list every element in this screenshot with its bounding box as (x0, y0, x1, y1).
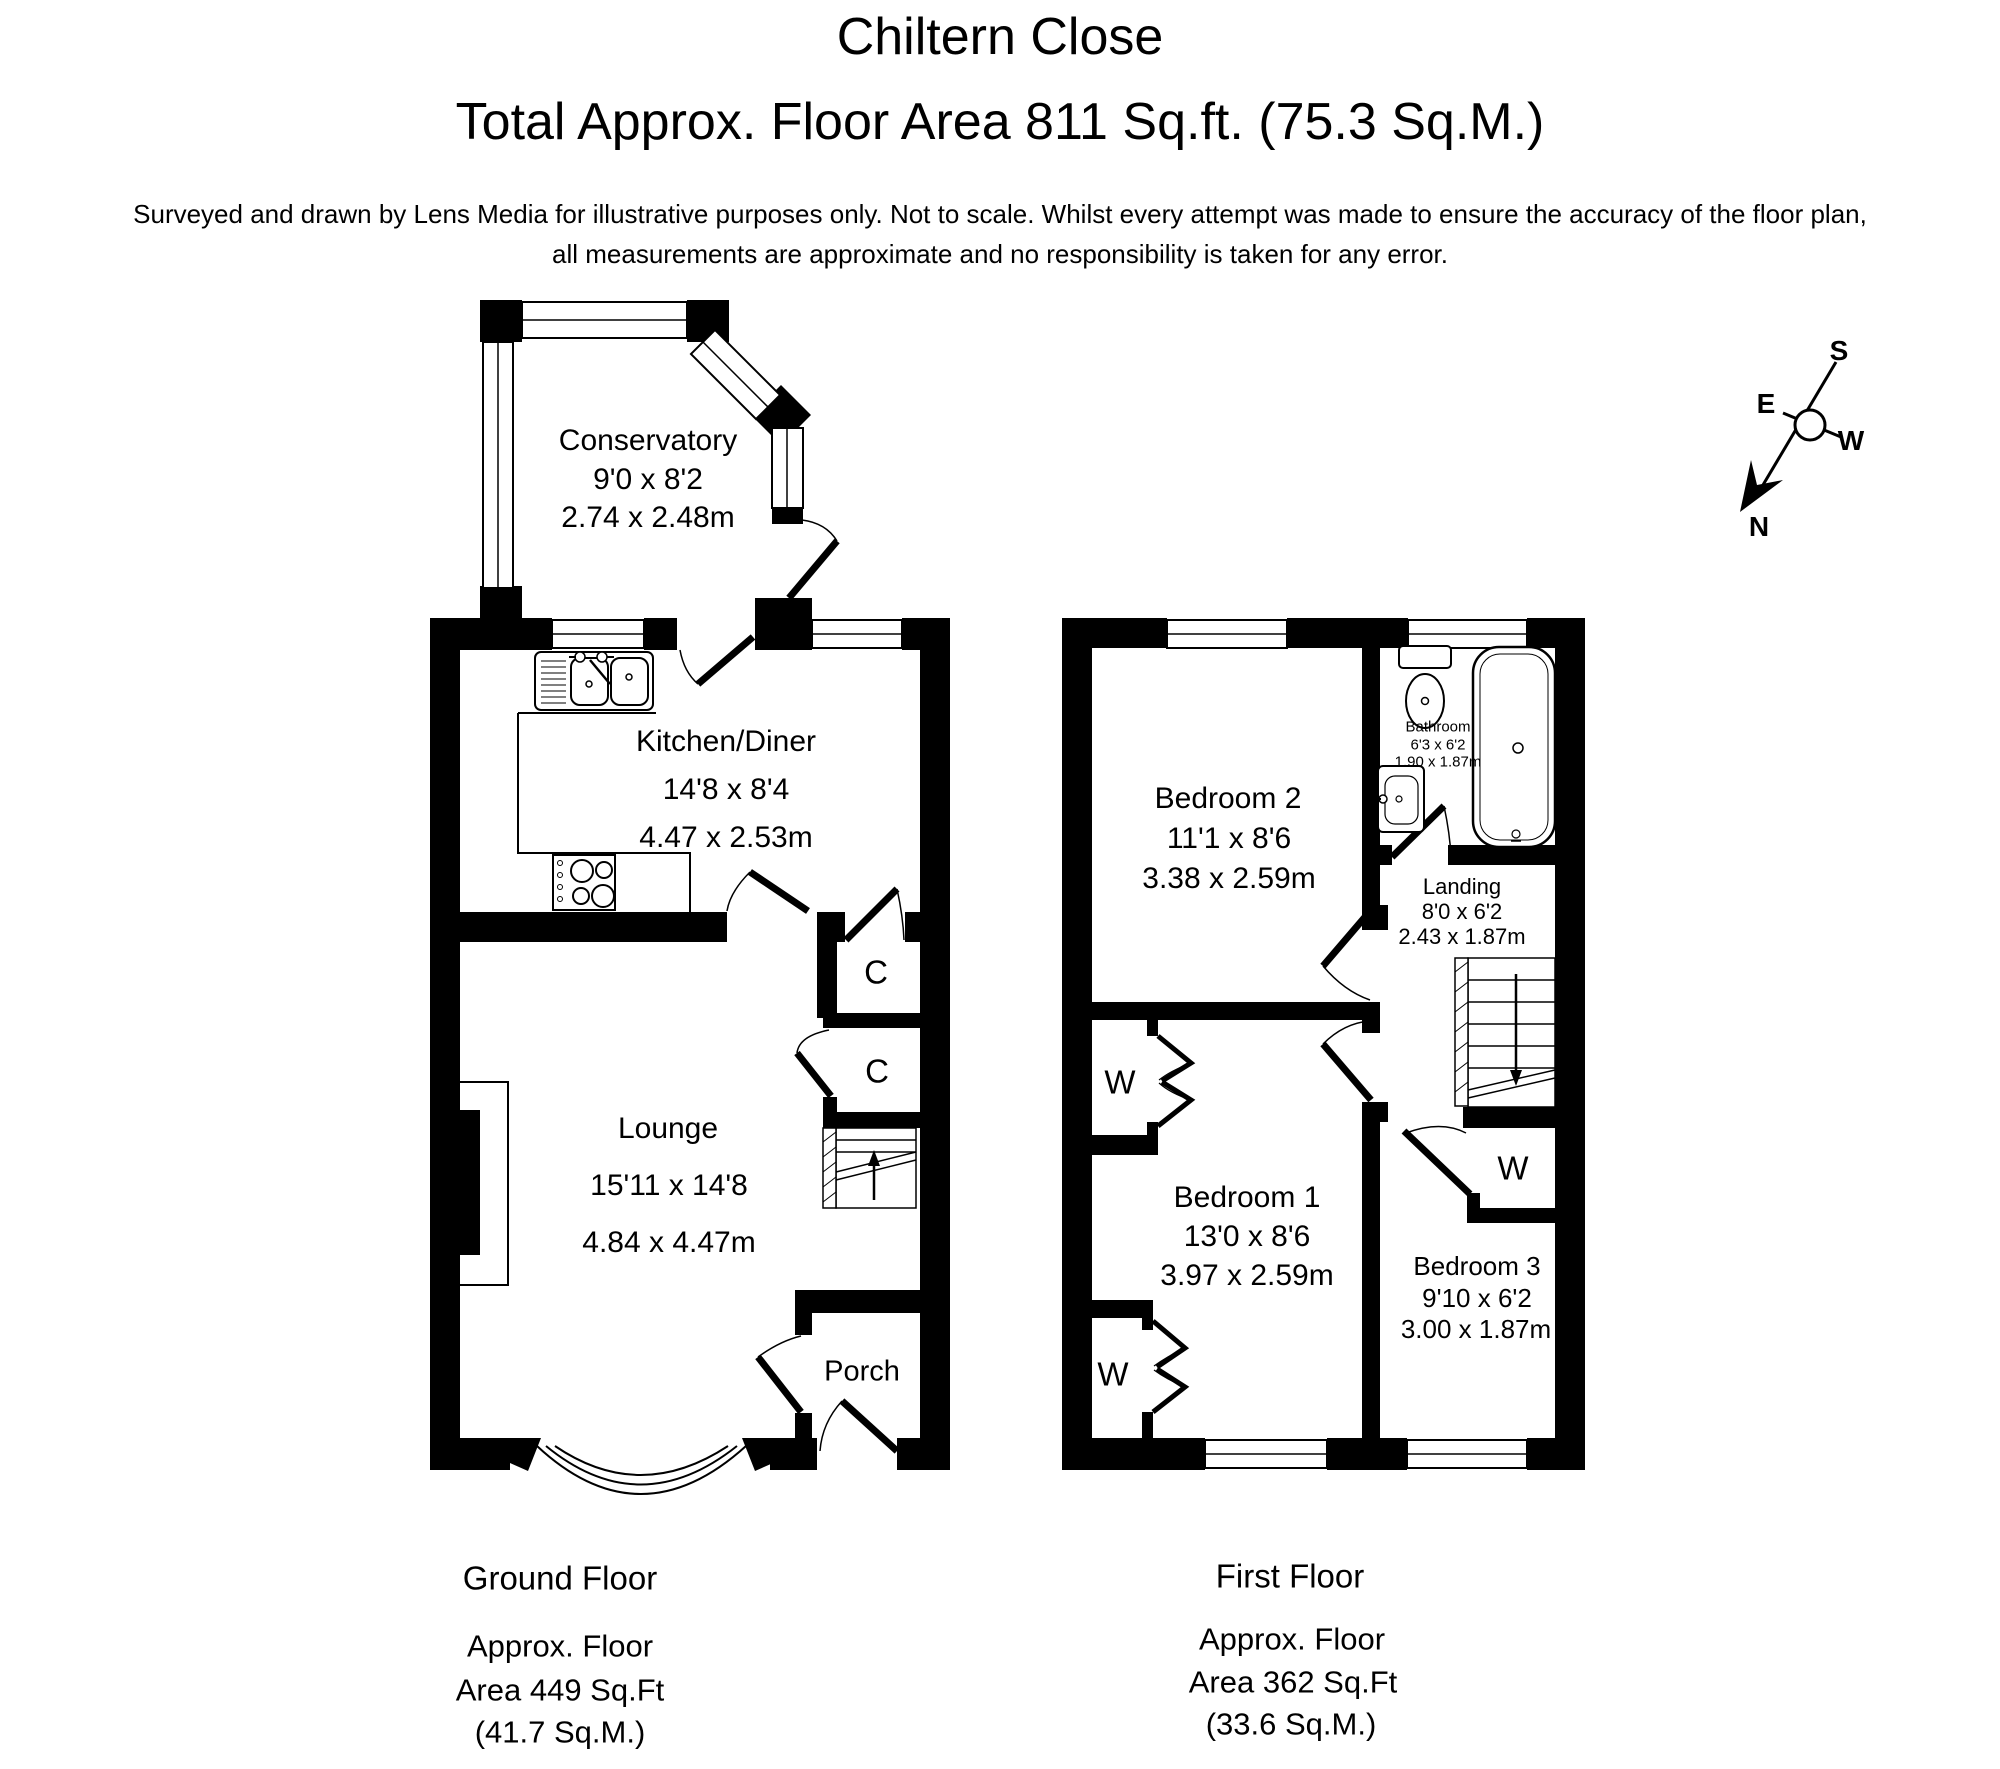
ff-stairs (1455, 958, 1555, 1107)
bathroom-dims-imperial: 6'3 x 6'2 (1411, 738, 1466, 753)
conservatory-dims-metric: 2.74 x 2.48m (561, 503, 734, 533)
toilet-icon (1399, 646, 1451, 728)
compass-west-label: W (1838, 427, 1864, 455)
gf-area-line2: Area 449 Sq.Ft (456, 1675, 665, 1706)
disclaimer-line2: all measurements are approximate and no … (552, 241, 1448, 267)
bedroom1-dims-metric: 3.97 x 2.59m (1160, 1261, 1333, 1291)
cupboard-bottom-label: C (865, 1055, 889, 1088)
cupboard-top-door (846, 889, 897, 940)
hob-icon (553, 855, 615, 910)
porch-door (758, 1357, 801, 1412)
bedroom1-door (1323, 1044, 1371, 1100)
bathtub-icon (1473, 647, 1555, 847)
kitchen-dims-imperial: 14'8 x 8'4 (663, 775, 790, 805)
floorplan-page: { "header": { "title": "Chiltern Close",… (0, 0, 2000, 1769)
lounge-dims-imperial: 15'11 x 14'8 (590, 1171, 748, 1201)
kitchen-door (698, 637, 753, 684)
gf-area-line3: (41.7 Sq.M.) (475, 1717, 646, 1748)
conservatory-dims-imperial: 9'0 x 8'2 (593, 465, 703, 495)
kitchen-label: Kitchen/Diner (636, 727, 816, 757)
bathroom-dims-metric: 1.90 x 1.87m (1395, 755, 1482, 770)
wardrobe-b1-top-label: W (1104, 1066, 1135, 1099)
lounge-dims-metric: 4.84 x 4.47m (582, 1228, 755, 1258)
lounge-label: Lounge (618, 1114, 718, 1144)
bathroom-label: Bathroom (1405, 720, 1470, 735)
bedroom2-dims-metric: 3.38 x 2.59m (1142, 864, 1315, 894)
landing-dims-metric: 2.43 x 1.87m (1398, 926, 1525, 948)
bedroom2-door (1323, 910, 1371, 966)
wardrobe-b3-label: W (1497, 1152, 1528, 1185)
page-title: Chiltern Close (837, 11, 1164, 63)
gf-windows (552, 620, 902, 648)
cupboard-bottom-door (797, 1053, 831, 1096)
bedroom1-dims-imperial: 13'0 x 8'6 (1184, 1222, 1311, 1252)
bedroom1-label: Bedroom 1 (1174, 1183, 1321, 1213)
chimney-breast (430, 1110, 480, 1255)
basin-icon (1373, 766, 1424, 832)
front-door (842, 1401, 897, 1451)
first-floor-label: First Floor (1216, 1560, 1365, 1593)
bedroom3-label: Bedroom 3 (1413, 1253, 1540, 1279)
ff-area-line3: (33.6 Sq.M.) (1206, 1709, 1377, 1740)
compass-south-label: S (1830, 337, 1849, 365)
compass-east-label: E (1757, 390, 1776, 418)
bedroom3-dims-metric: 3.00 x 1.87m (1401, 1316, 1551, 1342)
compass-icon (1740, 362, 1841, 512)
lounge-kitchen-door (750, 872, 808, 911)
bedroom2-dims-imperial: 11'1 x 8'6 (1167, 824, 1291, 854)
ff-area-line1: Approx. Floor (1199, 1624, 1385, 1655)
ground-floor-label: Ground Floor (463, 1562, 657, 1595)
bay-window (537, 1446, 746, 1494)
conservatory-label: Conservatory (559, 426, 737, 456)
landing-dims-imperial: 8'0 x 6'2 (1422, 901, 1503, 923)
kitchen-sink-icon (535, 652, 653, 710)
conservatory-window-angled (691, 330, 780, 419)
landing-label: Landing (1423, 876, 1501, 898)
gf-area-line1: Approx. Floor (467, 1631, 653, 1662)
compass-north-label: N (1749, 513, 1769, 541)
gf-stairs (823, 1128, 916, 1208)
kitchen-dims-metric: 4.47 x 2.53m (639, 823, 812, 853)
bedroom3-dims-imperial: 9'10 x 6'2 (1422, 1285, 1532, 1311)
disclaimer-line1: Surveyed and drawn by Lens Media for ill… (133, 201, 1867, 227)
porch-label: Porch (824, 1358, 900, 1387)
ff-area-line2: Area 362 Sq.Ft (1189, 1667, 1398, 1698)
conservatory-door (789, 541, 837, 598)
bedroom3-door (1404, 1131, 1470, 1194)
bedroom2-label: Bedroom 2 (1155, 784, 1302, 814)
wardrobe-b1-bottom-label: W (1097, 1358, 1128, 1391)
ff-doors (1323, 806, 1470, 1194)
page-subtitle: Total Approx. Floor Area 811 Sq.ft. (75.… (456, 96, 1545, 148)
cupboard-top-label: C (864, 956, 888, 989)
